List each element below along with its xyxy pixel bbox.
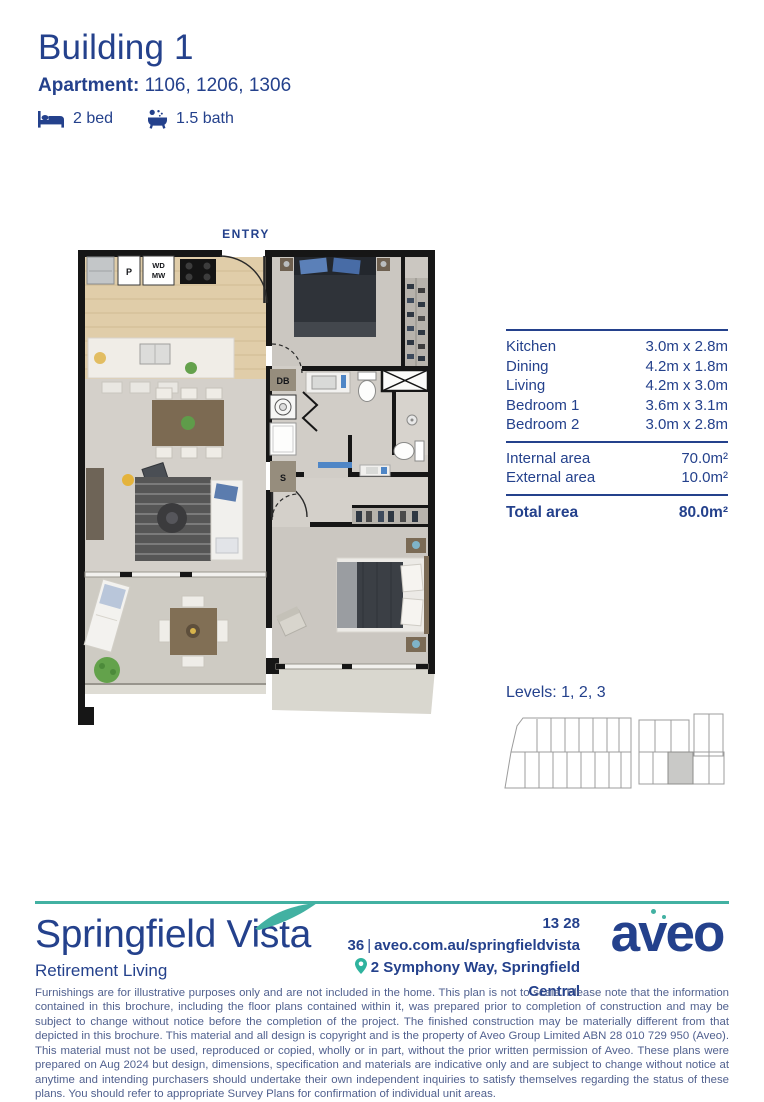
header: Building 1 Apartment: 1106, 1206, 1306 2	[38, 28, 291, 129]
washer-dryer-label: WD	[152, 261, 165, 270]
table-rule	[506, 441, 728, 443]
leaf-icon	[253, 903, 319, 931]
aveo-logo-text: aveo	[611, 904, 724, 963]
bedroom-2-robe	[352, 508, 428, 524]
table-row: Bedroom 2 3.0m x 2.8m	[506, 415, 728, 435]
table-row: Internal area 70.0m²	[506, 449, 728, 469]
table-row: Bedroom 1 3.6m x 3.1m	[506, 396, 728, 416]
bed-feature: 2 bed	[38, 110, 113, 128]
storage-cupboard: S	[270, 461, 296, 492]
aveo-logo: aveo	[604, 903, 730, 964]
room-size: 3.0m x 2.8m	[645, 337, 728, 357]
bedroom-1	[280, 257, 390, 337]
microwave-label: MW	[152, 271, 166, 280]
room-size: 4.2m x 1.8m	[645, 357, 728, 377]
aveo-logo-accent	[651, 909, 656, 914]
total-area-row: Total area 80.0m²	[506, 502, 728, 524]
contact-separator: |	[364, 937, 374, 954]
apartment-numbers: 1106, 1206, 1306	[145, 75, 292, 96]
website-url[interactable]: aveo.com.au/springfieldvista	[374, 937, 580, 954]
table-rule	[506, 329, 728, 331]
entry-label: ENTRY	[222, 227, 270, 241]
brand-subtitle: Retirement Living	[35, 961, 311, 981]
linen-closet	[382, 370, 428, 391]
disclaimer-text: Furnishings are for illustrative purpose…	[35, 986, 729, 1102]
brochure-page: Building 1 Apartment: 1106, 1206, 1306 2	[0, 0, 764, 1080]
storage-label: S	[280, 473, 286, 483]
pantry-label: P	[126, 267, 132, 277]
area-label: Internal area	[506, 449, 590, 469]
bedroom-2-balcony-track	[276, 664, 428, 669]
apartment-line: Apartment: 1106, 1206, 1306	[38, 75, 291, 97]
features-row: 2 bed 1.5 bath	[38, 109, 291, 129]
page-title: Building 1	[38, 28, 291, 68]
bath-count: 1.5 bath	[176, 110, 234, 128]
bed-count: 2 bed	[73, 110, 113, 128]
balcony-door-track	[85, 572, 266, 577]
table-row: External area 10.0m²	[506, 468, 728, 488]
wardrobe	[405, 278, 428, 366]
table-row: Dining 4.2m x 1.8m	[506, 357, 728, 377]
dining-setting	[152, 388, 224, 458]
area-label: External area	[506, 468, 595, 488]
area-value: 10.0m²	[681, 468, 728, 488]
bath-feature: 1.5 bath	[147, 109, 234, 129]
distribution-board-label: DB	[277, 376, 290, 386]
levels-diagram	[503, 710, 731, 794]
floor-plan: ENTRY	[60, 222, 460, 737]
total-area-value: 80.0m²	[679, 502, 728, 524]
area-value: 70.0m²	[681, 449, 728, 469]
room-label: Bedroom 1	[506, 396, 579, 416]
room-size: 4.2m x 3.0m	[645, 376, 728, 396]
brand-block: Springfield Vista Retirement Living	[35, 913, 311, 981]
total-area-label: Total area	[506, 502, 578, 524]
highlighted-unit	[668, 752, 693, 784]
apartment-label: Apartment:	[38, 75, 139, 96]
bath-icon	[147, 109, 168, 129]
aveo-logo-accent	[662, 915, 666, 919]
room-label: Kitchen	[506, 337, 556, 357]
levels-label: Levels: 1, 2, 3	[506, 684, 606, 702]
table-row: Living 4.2m x 3.0m	[506, 376, 728, 396]
room-label: Dining	[506, 357, 549, 377]
contact-line-1: 13 28 36|aveo.com.au/springfieldvista	[320, 913, 580, 957]
room-label: Bedroom 2	[506, 415, 579, 435]
room-size: 3.6m x 3.1m	[645, 396, 728, 416]
table-row: Kitchen 3.0m x 2.8m	[506, 337, 728, 357]
location-pin-icon	[355, 958, 367, 981]
table-rule	[506, 494, 728, 496]
floor-plan-drawing: ENTRY	[60, 222, 460, 737]
room-size: 3.0m x 2.8m	[645, 415, 728, 435]
room-label: Living	[506, 376, 545, 396]
bed-icon	[38, 110, 65, 128]
dimensions-table: Kitchen 3.0m x 2.8m Dining 4.2m x 1.8m L…	[506, 323, 728, 524]
